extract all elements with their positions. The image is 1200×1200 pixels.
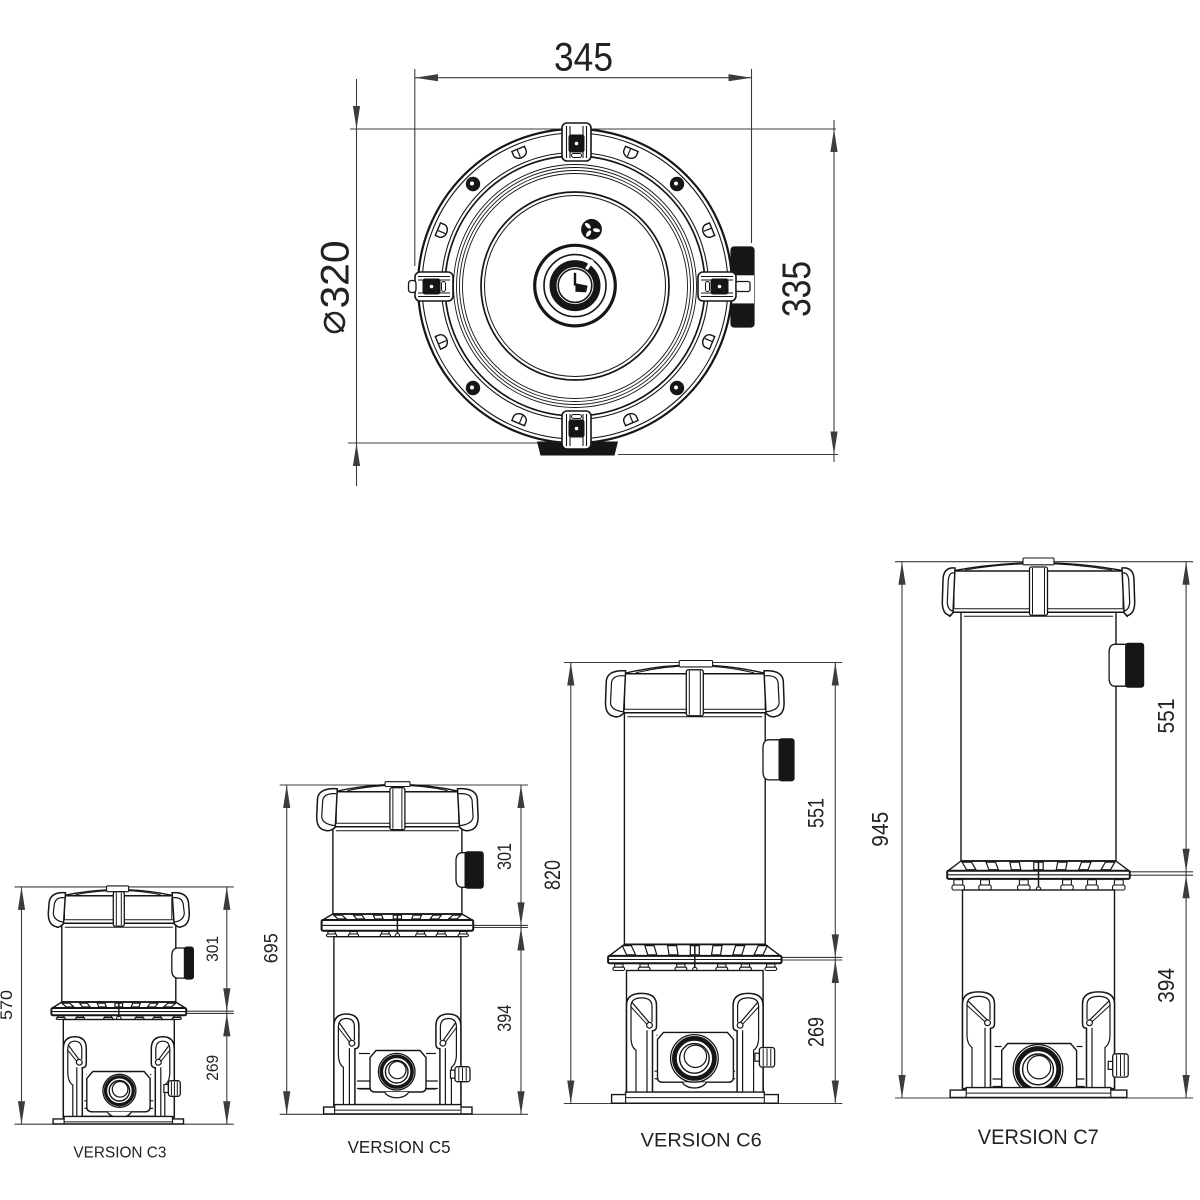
- svg-text:695: 695: [261, 933, 282, 963]
- svg-text:345: 345: [554, 36, 613, 80]
- svg-text:VERSION C7: VERSION C7: [978, 1125, 1099, 1149]
- svg-text:551: 551: [1153, 699, 1179, 734]
- svg-text:335: 335: [775, 261, 819, 317]
- svg-text:VERSION C5: VERSION C5: [348, 1138, 451, 1157]
- svg-text:551: 551: [804, 798, 829, 828]
- svg-text:VERSION C3: VERSION C3: [73, 1144, 166, 1161]
- svg-text:320: 320: [314, 241, 358, 309]
- svg-text:394: 394: [495, 1004, 516, 1031]
- svg-text:570: 570: [0, 990, 16, 1020]
- svg-text:394: 394: [1153, 968, 1179, 1003]
- svg-text:820: 820: [540, 860, 565, 890]
- svg-text:269: 269: [204, 1055, 222, 1081]
- svg-text:301: 301: [204, 936, 222, 962]
- svg-text:VERSION C6: VERSION C6: [641, 1130, 762, 1151]
- svg-text:269: 269: [804, 1017, 829, 1047]
- svg-text:945: 945: [867, 812, 893, 847]
- svg-text:301: 301: [495, 843, 516, 870]
